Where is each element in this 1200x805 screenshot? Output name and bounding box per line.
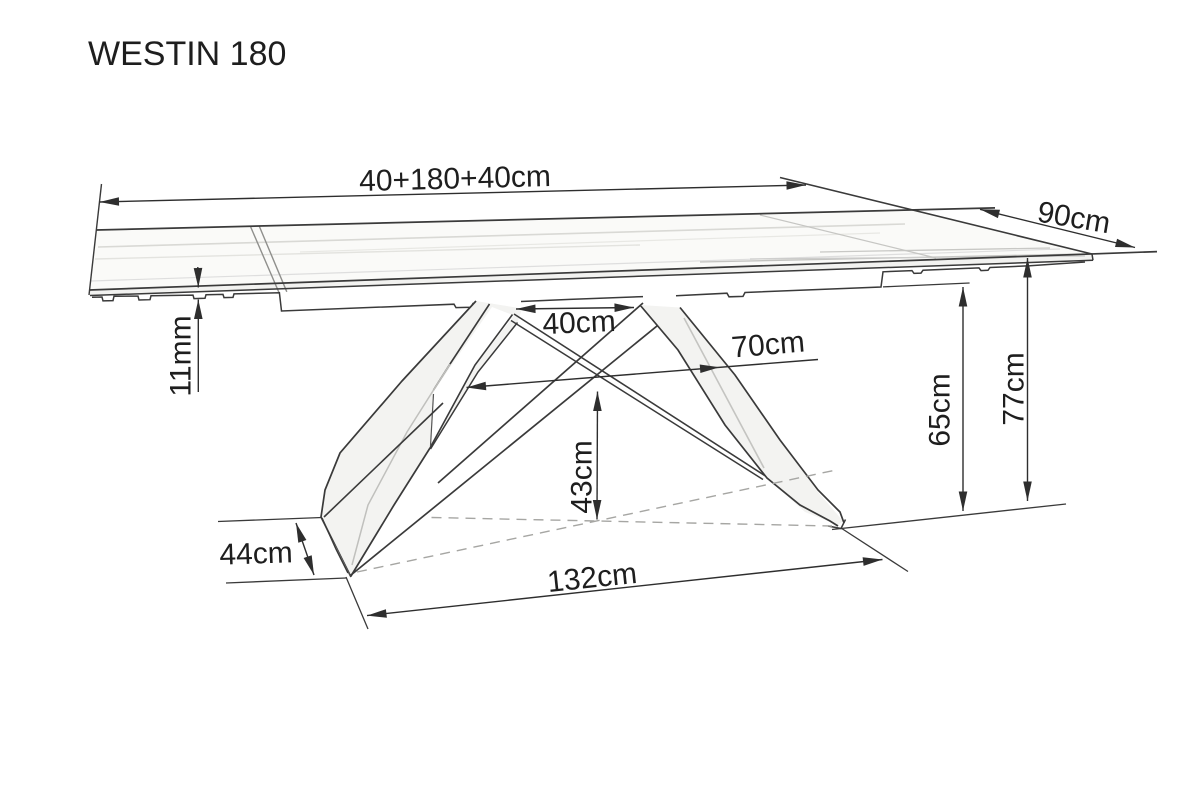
svg-text:40+180+40cm: 40+180+40cm <box>359 160 552 198</box>
svg-text:40cm: 40cm <box>542 305 617 341</box>
svg-text:43cm: 43cm <box>566 440 599 513</box>
svg-text:77cm: 77cm <box>998 352 1031 425</box>
svg-text:70cm: 70cm <box>730 325 806 364</box>
svg-text:65cm: 65cm <box>924 373 957 446</box>
svg-text:44cm: 44cm <box>219 536 293 572</box>
svg-text:WESTIN 180: WESTIN 180 <box>88 35 286 73</box>
svg-text:11mm: 11mm <box>165 315 198 396</box>
